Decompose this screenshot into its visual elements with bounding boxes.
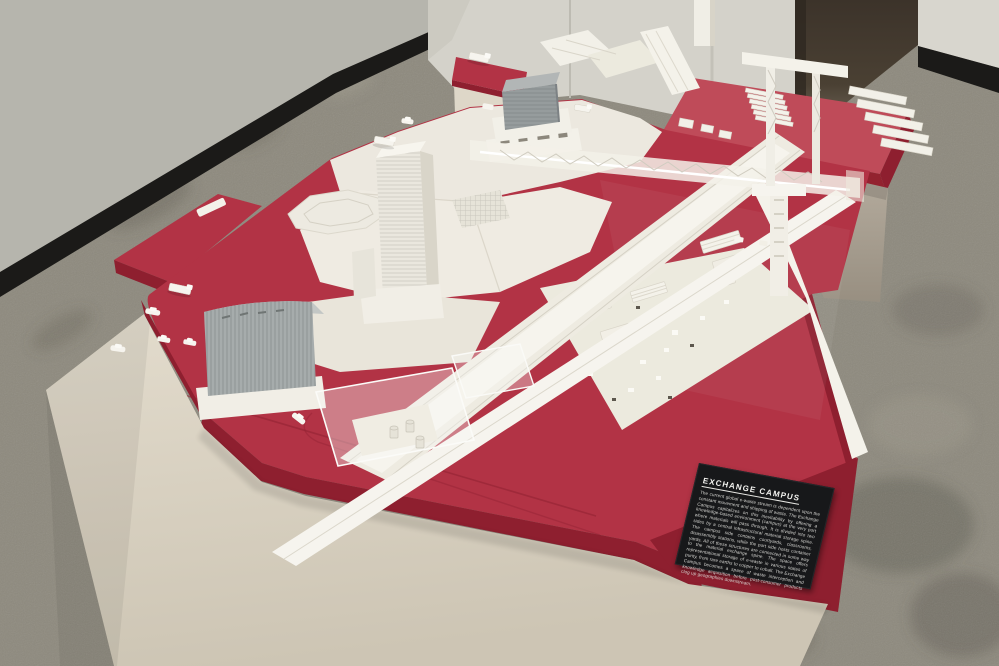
white-column-shade (710, 0, 715, 46)
tower-annex (352, 248, 376, 300)
bridge-pier-cap (752, 184, 806, 196)
gallery-photo: EXCHANGE CAMPUS The current global e-was… (0, 0, 999, 666)
acrylic-bridge-end (846, 170, 864, 202)
curved-gray-building (196, 301, 326, 420)
bridge-pier (770, 192, 788, 296)
scene-svg (0, 0, 999, 666)
